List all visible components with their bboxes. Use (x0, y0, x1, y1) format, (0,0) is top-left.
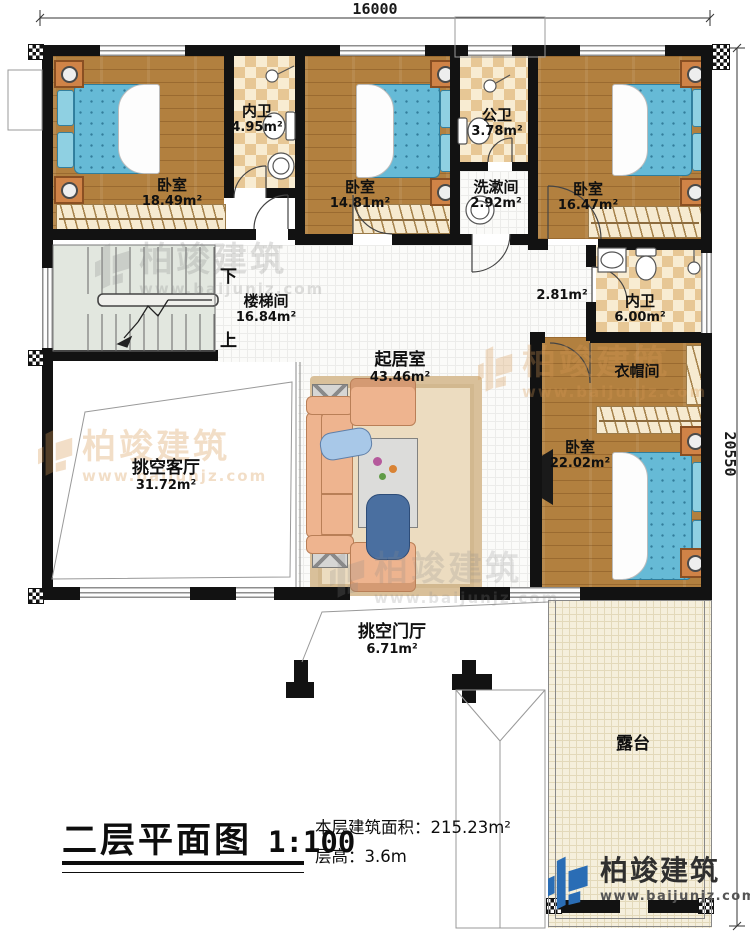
wall (528, 239, 548, 250)
wall (274, 587, 350, 600)
floor-area-value: 215.23m² (431, 818, 511, 837)
bed (612, 84, 708, 174)
wall (42, 229, 256, 240)
column-hatch (28, 350, 44, 366)
wall (460, 162, 488, 171)
floor-area-row: 本层建筑面积：215.23m² (315, 814, 511, 843)
floor-height-value: 3.6m (365, 847, 407, 866)
flower-decor (389, 465, 397, 473)
sofa-armrest (306, 396, 354, 415)
plan-info-block: 本层建筑面积：215.23m² 层高：3.6m (315, 814, 511, 872)
blanket (612, 84, 648, 176)
wall (190, 587, 236, 600)
window (100, 45, 185, 56)
brand-name: 柏竣建筑 (600, 856, 750, 887)
title-underline (62, 861, 304, 873)
dimension-top: 16000 (340, 0, 410, 18)
wall (450, 45, 460, 245)
wall (42, 587, 80, 600)
wall (580, 587, 712, 600)
column-hatch (28, 588, 44, 604)
stairs-up-label: 上 (220, 326, 237, 351)
nightstand (54, 60, 84, 88)
window (468, 45, 512, 56)
window (42, 268, 53, 348)
room-label-living: 起居室43.46m² (370, 350, 430, 386)
window (510, 587, 580, 600)
wall (586, 245, 596, 267)
room-label-cloakroom: 衣帽间 (614, 362, 659, 380)
window (80, 587, 190, 600)
column-hatch (28, 44, 44, 60)
window (340, 45, 425, 56)
wall (295, 234, 353, 245)
wall (528, 45, 538, 250)
room-label-washroom: 洗漱间2.92m² (470, 178, 521, 212)
room-label-terrace: 露台 (616, 734, 650, 754)
room-label-void-foyer: 挑空门厅6.71m² (358, 622, 426, 658)
porch-column (452, 674, 492, 690)
wall (512, 162, 528, 171)
floor-height-label: 层高： (315, 847, 365, 866)
floor-stairwell (53, 245, 215, 351)
flower-decor (373, 457, 382, 466)
pillow (57, 132, 74, 168)
roof-outline (456, 690, 545, 928)
lamp-icon (61, 182, 78, 199)
room-label-bedroom-tl: 卧室18.49m² (142, 176, 202, 210)
floor-area-label: 本层建筑面积： (315, 818, 431, 837)
flower-decor (379, 473, 386, 480)
bed (356, 84, 456, 176)
brand-logo: 柏竣建筑 www.baijunjz.com (548, 856, 750, 910)
room-label-bath-right: 内卫6.00m² (614, 292, 665, 326)
wall (295, 45, 305, 240)
wall (450, 234, 472, 245)
nightstand (54, 176, 84, 204)
room-label-bedroom-tc: 卧室14.81m² (330, 178, 390, 212)
column-hatch (712, 44, 730, 70)
wall (590, 332, 712, 343)
floor-plan-canvas: 16000 20550 卧室18.49m² 内卫4.95m² 卧室14.81m²… (0, 0, 750, 934)
wall (42, 350, 218, 361)
porch-column (286, 682, 314, 698)
room-label-bedroom-tr: 卧室16.47m² (558, 180, 618, 214)
floor-height-row: 层高：3.6m (315, 843, 511, 872)
lamp-icon (61, 66, 78, 83)
plan-title: 二层平面图 (62, 812, 252, 863)
room-label-corridor: 2.81m² (536, 288, 587, 304)
room-label-bath-public: 公卫3.78m² (471, 106, 522, 140)
blanket (612, 452, 648, 580)
bay-outline (8, 70, 42, 130)
room-label-void-living: 挑空客厅31.72m² (132, 458, 200, 494)
sofa-armrest (306, 535, 354, 554)
window (580, 45, 665, 56)
plan-title-block: 二层平面图 1:100 (62, 812, 355, 863)
dimension-right: 20550 (721, 414, 739, 494)
window (701, 253, 712, 333)
stairs-down-label: 下 (220, 262, 237, 287)
room-label-bath-tl: 内卫4.95m² (231, 102, 282, 136)
blanket (118, 84, 160, 174)
wardrobe-rail (355, 219, 449, 221)
wall (598, 239, 712, 250)
wall (460, 587, 510, 600)
wall (530, 332, 542, 590)
wardrobe-rail (591, 222, 699, 224)
wardrobe-rail (59, 218, 223, 220)
wardrobe-rail (599, 420, 701, 422)
window (236, 587, 274, 600)
pillow (57, 90, 74, 126)
bed (56, 84, 158, 172)
room-label-bedroom-br: 卧室22.02m² (550, 438, 610, 472)
blanket (356, 84, 394, 178)
brand-logo-icon (548, 856, 592, 910)
brand-url: www.baijunjz.com (600, 889, 750, 904)
person-sitting (366, 494, 410, 560)
room-label-stairwell: 楼梯间16.84m² (236, 292, 296, 326)
